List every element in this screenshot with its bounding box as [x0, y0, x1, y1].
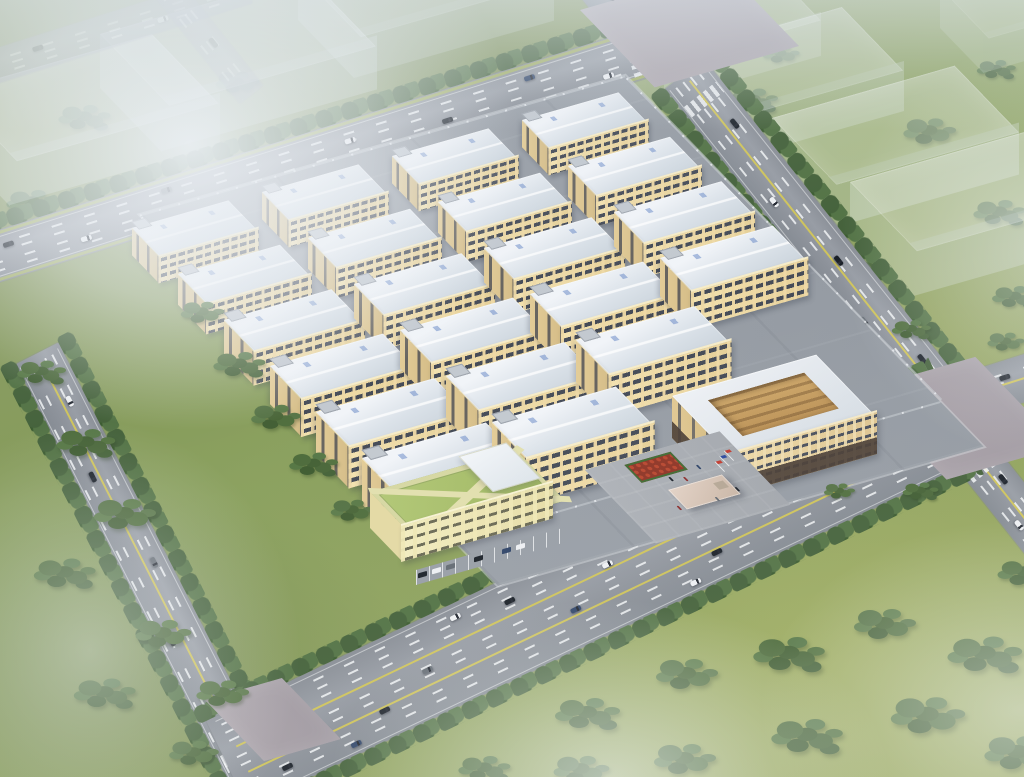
aerial-site-rendering [0, 0, 1024, 777]
fog-overlay [0, 0, 1024, 777]
